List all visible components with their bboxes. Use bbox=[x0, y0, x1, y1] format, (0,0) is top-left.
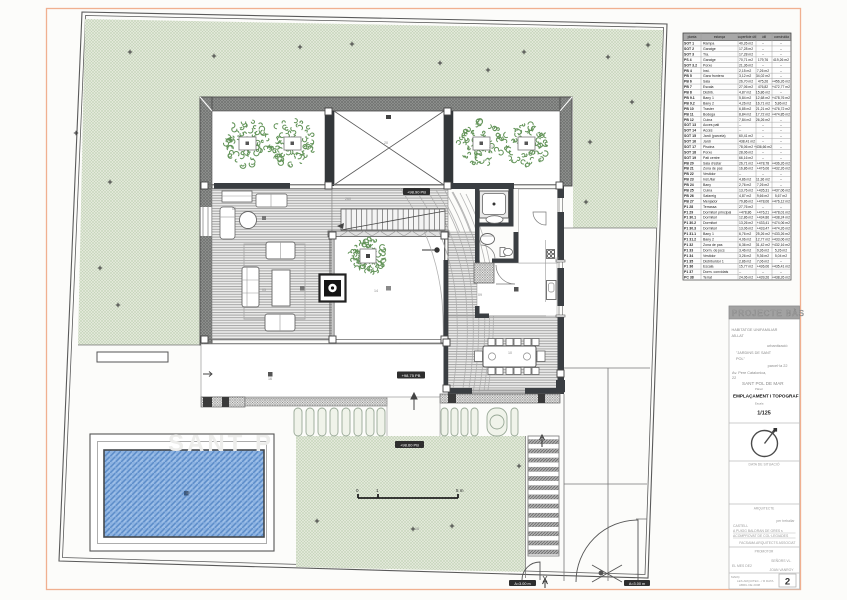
svg-text:SOT 3: SOT 3 bbox=[684, 52, 694, 56]
svg-text:Av. Pere Catalonica,: Av. Pere Catalonica, bbox=[732, 371, 766, 375]
svg-text:P1 31.2: P1 31.2 bbox=[684, 238, 696, 242]
svg-text:9,66 m2: 9,66 m2 bbox=[757, 194, 769, 198]
svg-text:6,36 m2: 6,36 m2 bbox=[739, 243, 751, 247]
svg-text:P1 34: P1 34 bbox=[684, 254, 693, 258]
svg-text:Bany 1: Bany 1 bbox=[703, 232, 714, 236]
svg-text:estança: estança bbox=[714, 35, 725, 39]
svg-text:--: -- bbox=[780, 145, 782, 149]
svg-text:+476,72 m2: +476,72 m2 bbox=[772, 107, 790, 111]
svg-text:4,26 m2: 4,26 m2 bbox=[739, 101, 751, 105]
svg-text:SOT 16: SOT 16 bbox=[684, 140, 696, 144]
svg-text:"JARDINS DE SANT: "JARDINS DE SANT bbox=[736, 351, 772, 355]
svg-text:PB 20: PB 20 bbox=[684, 161, 694, 165]
svg-text:JOAN VANROY: JOAN VANROY bbox=[769, 568, 794, 572]
svg-text:5,84 m2: 5,84 m2 bbox=[739, 96, 751, 100]
svg-text:P1 30.1: P1 30.1 bbox=[684, 216, 696, 220]
svg-text:Garatge: Garatge bbox=[703, 47, 716, 51]
svg-text:--: -- bbox=[780, 178, 782, 182]
svg-text:--: -- bbox=[739, 123, 741, 127]
svg-text:PB 27: PB 27 bbox=[684, 199, 694, 203]
svg-text:17,72 m2: 17,72 m2 bbox=[756, 112, 770, 116]
svg-text:SOT 13: SOT 13 bbox=[684, 123, 696, 127]
svg-text:SOT 3.2: SOT 3.2 bbox=[684, 63, 697, 67]
svg-text:P1 30.3: P1 30.3 bbox=[684, 227, 696, 231]
svg-text:--: -- bbox=[780, 259, 782, 263]
svg-text:Terrat: Terrat bbox=[703, 276, 712, 280]
svg-text:SANT P: SANT P bbox=[168, 430, 274, 457]
svg-text:Vestidor: Vestidor bbox=[703, 254, 716, 258]
svg-text:PB 25: PB 25 bbox=[684, 189, 694, 193]
svg-text:--: -- bbox=[780, 172, 782, 176]
svg-text:07: 07 bbox=[555, 257, 559, 261]
svg-text:Bany 2: Bany 2 bbox=[703, 101, 714, 105]
svg-text:4,06 m2: 4,06 m2 bbox=[739, 238, 751, 242]
svg-text:+436,26 m2: +436,26 m2 bbox=[772, 161, 790, 165]
svg-text:15,77 m2: 15,77 m2 bbox=[739, 265, 753, 269]
svg-text:179,76: 179,76 bbox=[758, 58, 768, 62]
svg-text:18: 18 bbox=[415, 527, 419, 531]
svg-text:Jardí (parcela): Jardí (parcela) bbox=[703, 134, 726, 138]
svg-text:5,67 m2: 5,67 m2 bbox=[775, 194, 787, 198]
svg-text:parcel·la 22: parcel·la 22 bbox=[768, 364, 788, 368]
svg-text:--: -- bbox=[762, 63, 764, 67]
svg-text:--: -- bbox=[762, 270, 764, 274]
svg-text:26,70 m2: 26,70 m2 bbox=[739, 80, 753, 84]
svg-text:+439,26: +439,26 bbox=[757, 276, 769, 280]
svg-text:PB 26: PB 26 bbox=[684, 194, 694, 198]
svg-text:HABITATGE UNIFAMILIAR: HABITATGE UNIFAMILIAR bbox=[732, 328, 778, 332]
svg-text:Piscina: Piscina bbox=[703, 145, 714, 149]
svg-text:--: -- bbox=[762, 52, 764, 56]
svg-text:2,86 m2: 2,86 m2 bbox=[739, 259, 751, 263]
svg-text:--: -- bbox=[780, 69, 782, 73]
svg-text:PS 4: PS 4 bbox=[684, 58, 692, 62]
svg-text:12,77 m2: 12,77 m2 bbox=[756, 238, 770, 242]
svg-text:--: -- bbox=[780, 150, 782, 154]
svg-text:--: -- bbox=[780, 270, 782, 274]
svg-text:P1 31.1: P1 31.1 bbox=[684, 232, 696, 236]
svg-text:Dormitori: Dormitori bbox=[703, 227, 717, 231]
svg-text:4,86 m2: 4,86 m2 bbox=[739, 178, 751, 182]
svg-text:POL": POL" bbox=[736, 357, 746, 361]
svg-text:21,21 m2: 21,21 m2 bbox=[756, 107, 770, 111]
svg-text:13: 13 bbox=[186, 491, 190, 495]
svg-text:476,82: 476,82 bbox=[758, 85, 768, 89]
svg-text:7,06 m2: 7,06 m2 bbox=[757, 259, 769, 263]
svg-text:+436,66 m2: +436,66 m2 bbox=[754, 145, 772, 149]
svg-text:Jardí: Jardí bbox=[703, 140, 711, 144]
svg-text:--: -- bbox=[762, 172, 764, 176]
svg-text:+437,06 m2: +437,06 m2 bbox=[772, 189, 790, 193]
svg-text:--: -- bbox=[780, 123, 782, 127]
svg-text:PB 12: PB 12 bbox=[684, 118, 694, 122]
svg-text:--: -- bbox=[780, 183, 782, 187]
svg-text:FACSAMA ARQUITECTS ASSOCIAT: FACSAMA ARQUITECTS ASSOCIAT bbox=[739, 541, 795, 545]
svg-text:Vestidor: Vestidor bbox=[703, 172, 716, 176]
svg-text:ABRIL DE 2008: ABRIL DE 2008 bbox=[739, 583, 760, 587]
svg-text:+476,21: +476,21 bbox=[757, 210, 769, 214]
svg-text:+478,06: +478,06 bbox=[757, 199, 769, 203]
svg-text:+433,41: +433,41 bbox=[757, 221, 769, 225]
svg-text:66,16 m2: 66,16 m2 bbox=[739, 156, 753, 160]
svg-text:Safareig: Safareig bbox=[703, 194, 716, 198]
svg-text:PC 38: PC 38 bbox=[684, 276, 694, 280]
svg-text:15,86 m2: 15,86 m2 bbox=[756, 91, 770, 95]
svg-text:--: -- bbox=[780, 74, 782, 78]
svg-text:A=3.00 m: A=3.00 m bbox=[629, 582, 645, 586]
svg-text:22: 22 bbox=[732, 376, 736, 380]
svg-text:2: 2 bbox=[785, 577, 790, 588]
svg-text:PB 6: PB 6 bbox=[684, 80, 692, 84]
svg-text:PB 5: PB 5 bbox=[684, 74, 692, 78]
svg-text:10: 10 bbox=[508, 351, 512, 355]
svg-text:7,26 m2: 7,26 m2 bbox=[757, 69, 769, 73]
svg-text:PB 4: PB 4 bbox=[684, 69, 692, 73]
svg-text:--: -- bbox=[762, 129, 764, 133]
svg-text:+474,26 m2: +474,26 m2 bbox=[772, 227, 790, 231]
svg-text:+98.60 PB: +98.60 PB bbox=[400, 442, 419, 447]
svg-text:Cuina: Cuina bbox=[703, 118, 712, 122]
svg-text:+476,12 m2: +476,12 m2 bbox=[772, 199, 790, 203]
svg-text:SANT POL DE MAR: SANT POL DE MAR bbox=[742, 381, 784, 386]
svg-text:Pati centre: Pati centre bbox=[703, 156, 720, 160]
svg-text:--: -- bbox=[762, 123, 764, 127]
svg-text:SOT 1: SOT 1 bbox=[684, 42, 694, 46]
svg-text:Bany 1: Bany 1 bbox=[703, 96, 714, 100]
svg-text:Rampa: Rampa bbox=[703, 42, 714, 46]
svg-text:Traster: Traster bbox=[703, 107, 715, 111]
svg-text:7,84 m2: 7,84 m2 bbox=[739, 118, 751, 122]
svg-text:SOT 2: SOT 2 bbox=[684, 47, 694, 51]
svg-text:2,76 m2: 2,76 m2 bbox=[739, 183, 751, 187]
svg-text:Sala d'estar: Sala d'estar bbox=[703, 161, 722, 165]
svg-text:27,06 m2: 27,06 m2 bbox=[739, 85, 753, 89]
svg-text:+436,06: +436,06 bbox=[757, 265, 769, 269]
svg-text:PROMOTOR: PROMOTOR bbox=[755, 550, 774, 554]
svg-text:Escala: Escala bbox=[703, 85, 714, 89]
svg-text:DATA DE SITUACIÓ: DATA DE SITUACIÓ bbox=[749, 462, 780, 467]
svg-text:Acces pati: Acces pati bbox=[703, 123, 719, 127]
svg-text:P1 33: P1 33 bbox=[684, 248, 693, 252]
svg-text:34,02 m2: 34,02 m2 bbox=[756, 74, 770, 78]
svg-text:Accés: Accés bbox=[703, 129, 713, 133]
svg-text:6,76 m2: 6,76 m2 bbox=[739, 232, 751, 236]
svg-text:superfície útil: superfície útil bbox=[738, 35, 757, 39]
svg-text:+432,16 m2: +432,16 m2 bbox=[772, 243, 790, 247]
svg-text:+433,06 m2: +433,06 m2 bbox=[772, 238, 790, 242]
svg-text:3,26 m2: 3,26 m2 bbox=[739, 254, 751, 258]
svg-text:EL MES DE2: EL MES DE2 bbox=[732, 564, 752, 568]
svg-text:2,15 m2: 2,15 m2 bbox=[739, 69, 751, 73]
svg-text:40,26 m2: 40,26 m2 bbox=[739, 42, 753, 46]
svg-text:3,12 m2: 3,12 m2 bbox=[739, 74, 751, 78]
svg-text:ACOMPROVAT DE COL·LEGIADES: ACOMPROVAT DE COL·LEGIADES bbox=[733, 534, 789, 538]
svg-text:EMPLAÇAMENT I TOPOGRAF: EMPLAÇAMENT I TOPOGRAF bbox=[733, 394, 799, 399]
svg-text:ARQUITECTE: ARQUITECTE bbox=[754, 507, 775, 511]
svg-text:26,71 m2: 26,71 m2 bbox=[739, 161, 753, 165]
svg-text:260: 260 bbox=[345, 197, 351, 201]
svg-text:PB 21: PB 21 bbox=[684, 167, 694, 171]
svg-text:Inst./llar: Inst./llar bbox=[703, 178, 716, 182]
svg-text:--: -- bbox=[762, 140, 764, 144]
svg-text:3,46 m2: 3,46 m2 bbox=[739, 248, 751, 252]
svg-text:PB 24: PB 24 bbox=[684, 183, 694, 187]
svg-text:17,28 m2: 17,28 m2 bbox=[739, 52, 753, 56]
svg-text:03: 03 bbox=[232, 207, 236, 211]
svg-text:+98.75 PB: +98.75 PB bbox=[402, 373, 421, 378]
svg-text:+472,77 m2: +472,77 m2 bbox=[772, 85, 790, 89]
svg-text:--: -- bbox=[780, 47, 782, 51]
svg-text:+438,24 m2: +438,24 m2 bbox=[772, 216, 790, 220]
svg-text:PB 11: PB 11 bbox=[684, 112, 694, 116]
svg-text:+456,26 m2: +456,26 m2 bbox=[772, 80, 790, 84]
svg-text:--: -- bbox=[780, 91, 782, 95]
svg-text:09: 09 bbox=[478, 293, 482, 297]
svg-text:P1 37: P1 37 bbox=[684, 270, 693, 274]
svg-text:P1 35: P1 35 bbox=[684, 259, 693, 263]
svg-text:--: -- bbox=[780, 134, 782, 138]
svg-text:Dorm. convidats: Dorm. convidats bbox=[703, 270, 729, 274]
svg-text:4,87 m2: 4,87 m2 bbox=[739, 91, 751, 95]
svg-text:+432,26 m2: +432,26 m2 bbox=[772, 167, 790, 171]
svg-text:Bany: Bany bbox=[703, 183, 711, 187]
svg-text:5,04 m2: 5,04 m2 bbox=[775, 254, 787, 258]
svg-text:25,26 m2: 25,26 m2 bbox=[756, 232, 770, 236]
svg-text:+434,86: +434,86 bbox=[757, 216, 769, 220]
svg-text:--: -- bbox=[780, 52, 782, 56]
svg-text:78,06 m2: 78,06 m2 bbox=[739, 145, 753, 149]
svg-text:8,84 m2: 8,84 m2 bbox=[739, 112, 751, 116]
svg-text:urbanització: urbanització bbox=[767, 344, 787, 348]
svg-text:16: 16 bbox=[268, 377, 272, 381]
svg-text:SOT 17: SOT 17 bbox=[684, 145, 696, 149]
svg-text:Zona de pas: Zona de pas bbox=[703, 167, 723, 171]
svg-text:--: -- bbox=[780, 140, 782, 144]
svg-text:5,86 m2: 5,86 m2 bbox=[775, 101, 787, 105]
svg-text:Dormitori: Dormitori bbox=[703, 216, 717, 220]
svg-text:Escala: Escala bbox=[703, 265, 714, 269]
svg-text:17,28 m2: 17,28 m2 bbox=[739, 47, 753, 51]
svg-text:Porxo: Porxo bbox=[703, 63, 712, 67]
svg-text:A PUIGG BALDRAN DE GRES s: A PUIGG BALDRAN DE GRES s bbox=[733, 529, 783, 533]
svg-text:Tra.: Tra. bbox=[703, 52, 709, 56]
svg-text:SOT 14: SOT 14 bbox=[684, 129, 696, 133]
svg-text:Sala: Sala bbox=[703, 80, 710, 84]
svg-text:4,87 m2: 4,87 m2 bbox=[739, 194, 751, 198]
svg-text:Plànol: Plànol bbox=[755, 387, 763, 391]
svg-text:24,06 m2: 24,06 m2 bbox=[739, 276, 753, 280]
svg-text:13,06 m2: 13,06 m2 bbox=[739, 227, 753, 231]
svg-text:Cuina: Cuina bbox=[703, 189, 712, 193]
svg-text:PB 10: PB 10 bbox=[684, 107, 694, 111]
svg-text:--: -- bbox=[762, 205, 764, 209]
svg-text:--: -- bbox=[762, 134, 764, 138]
svg-text:CASTELL: CASTELL bbox=[733, 524, 748, 528]
svg-text:+478,76 m2: +478,76 m2 bbox=[772, 96, 790, 100]
svg-text:Terrassa: Terrassa bbox=[703, 205, 716, 209]
svg-text:+438,26 m2: +438,26 m2 bbox=[772, 276, 790, 280]
svg-text:PROJECTE BÀS: PROJECTE BÀS bbox=[732, 309, 805, 318]
svg-text:13,76 m2: 13,76 m2 bbox=[739, 189, 753, 193]
svg-text:438,41 m2: 438,41 m2 bbox=[739, 140, 755, 144]
svg-text:P1 32: P1 32 bbox=[684, 243, 693, 247]
svg-text:--: -- bbox=[762, 47, 764, 51]
svg-text:P1 36: P1 36 bbox=[684, 265, 693, 269]
svg-text:7,26 m2: 7,26 m2 bbox=[757, 183, 769, 187]
svg-text:Bodega: Bodega bbox=[703, 112, 715, 116]
svg-text:475,26: 475,26 bbox=[758, 80, 768, 84]
svg-text:+478,86: +478,86 bbox=[739, 210, 751, 214]
svg-text:Zona de pas: Zona de pas bbox=[703, 243, 723, 247]
svg-text:Menjador: Menjador bbox=[703, 199, 718, 203]
svg-text:+476,06: +476,06 bbox=[757, 167, 769, 171]
svg-text:--: -- bbox=[762, 150, 764, 154]
svg-text:--: -- bbox=[739, 129, 741, 133]
svg-text:+474,06 m2: +474,06 m2 bbox=[772, 221, 790, 225]
svg-text:79,86 m2: 79,86 m2 bbox=[739, 199, 753, 203]
svg-text:5 m: 5 m bbox=[456, 488, 464, 493]
svg-text:13,26 m2: 13,26 m2 bbox=[739, 221, 753, 225]
svg-text:27,76 m2: 27,76 m2 bbox=[739, 205, 753, 209]
svg-text:Bany 2: Bany 2 bbox=[703, 238, 714, 242]
svg-text:PB 23: PB 23 bbox=[684, 178, 694, 182]
svg-text:SOT 15: SOT 15 bbox=[684, 134, 696, 138]
svg-text:+435,31: +435,31 bbox=[757, 189, 769, 193]
svg-text:per treballar: per treballar bbox=[776, 519, 795, 523]
svg-text:12,86 m2: 12,86 m2 bbox=[739, 216, 753, 220]
svg-text:Porxo: Porxo bbox=[703, 150, 712, 154]
svg-text:A=3.00 m: A=3.00 m bbox=[514, 582, 530, 586]
svg-text:PB 7: PB 7 bbox=[684, 85, 692, 89]
svg-text:26,26 m2: 26,26 m2 bbox=[756, 118, 770, 122]
svg-text:P1 29: P1 29 bbox=[684, 210, 693, 214]
svg-text:21: 21 bbox=[489, 145, 493, 149]
svg-text:Distribuïdor 1: Distribuïdor 1 bbox=[703, 259, 724, 263]
svg-text:+435,41 m2: +435,41 m2 bbox=[772, 265, 790, 269]
svg-text:Gara frontera: Gara frontera bbox=[703, 74, 724, 78]
svg-text:--: -- bbox=[780, 156, 782, 160]
svg-text:+478,01 m2: +478,01 m2 bbox=[772, 210, 790, 214]
svg-text:construïda: construïda bbox=[774, 35, 789, 39]
svg-text:5,26 m2: 5,26 m2 bbox=[775, 248, 787, 252]
svg-text:14: 14 bbox=[374, 289, 378, 293]
svg-text:--: -- bbox=[739, 172, 741, 176]
svg-text:Distrib.: Distrib. bbox=[703, 91, 714, 95]
svg-text:+433,47: +433,47 bbox=[757, 227, 769, 231]
svg-text:SOT 18: SOT 18 bbox=[684, 150, 696, 154]
svg-text:419,26 m2: 419,26 m2 bbox=[773, 58, 789, 62]
svg-text:11,36 m2: 11,36 m2 bbox=[756, 178, 770, 182]
svg-text:--: -- bbox=[739, 270, 741, 274]
svg-text:--: -- bbox=[780, 118, 782, 122]
svg-text:16,86 m2: 16,86 m2 bbox=[739, 167, 753, 171]
svg-text:28,06 m2: 28,06 m2 bbox=[739, 150, 753, 154]
svg-text:PB 9.2: PB 9.2 bbox=[684, 101, 695, 105]
svg-text:P1 30.2: P1 30.2 bbox=[684, 221, 696, 225]
svg-text:60,41 m2: 60,41 m2 bbox=[739, 134, 753, 138]
svg-text:+474,85 m2: +474,85 m2 bbox=[772, 112, 790, 116]
svg-text:12,68 m2: 12,68 m2 bbox=[756, 96, 770, 100]
svg-text:1/125: 1/125 bbox=[757, 411, 771, 417]
svg-text:--: -- bbox=[780, 129, 782, 133]
svg-text:Dormitori principal: Dormitori principal bbox=[703, 210, 731, 214]
svg-text:Escala: Escala bbox=[755, 402, 764, 406]
svg-text:+98.90 PB: +98.90 PB bbox=[407, 189, 426, 194]
svg-text:Dormitori: Dormitori bbox=[703, 221, 717, 225]
svg-text:21,36 m2: 21,36 m2 bbox=[739, 63, 753, 67]
svg-text:--: -- bbox=[780, 205, 782, 209]
svg-text:P1 28: P1 28 bbox=[684, 205, 693, 209]
svg-text:--: -- bbox=[780, 63, 782, 67]
svg-text:20: 20 bbox=[384, 141, 388, 145]
svg-text:+478,78: +478,78 bbox=[757, 161, 769, 165]
svg-text:--: -- bbox=[780, 42, 782, 46]
svg-text:16,71 m2: 16,71 m2 bbox=[756, 101, 770, 105]
svg-text:9,36 m2: 9,36 m2 bbox=[757, 254, 769, 258]
svg-text:6,85 m2: 6,85 m2 bbox=[739, 107, 751, 111]
svg-text:útil: útil bbox=[762, 35, 766, 39]
svg-text:Inst.: Inst. bbox=[703, 69, 710, 73]
svg-text:Garatge: Garatge bbox=[703, 58, 716, 62]
svg-text:SEÑORS VL.: SEÑORS VL. bbox=[771, 558, 791, 563]
svg-text:PB 9.1: PB 9.1 bbox=[684, 96, 695, 100]
svg-text:PB 22: PB 22 bbox=[684, 172, 694, 176]
svg-text:05: 05 bbox=[262, 288, 266, 292]
svg-text:SOT 19: SOT 19 bbox=[684, 156, 696, 160]
svg-text:70,71 m2: 70,71 m2 bbox=[739, 58, 753, 62]
svg-text:AÏLLAT: AÏLLAT bbox=[732, 334, 745, 338]
svg-text:Dorm. de jocs: Dorm. de jocs bbox=[703, 248, 725, 252]
svg-text:--: -- bbox=[762, 156, 764, 160]
svg-text:9,36 m2: 9,36 m2 bbox=[757, 248, 769, 252]
svg-text:planta: planta bbox=[688, 35, 697, 39]
svg-text:--: -- bbox=[762, 42, 764, 46]
svg-text:+433,26 m2: +433,26 m2 bbox=[772, 232, 790, 236]
svg-text:31,42 m2: 31,42 m2 bbox=[756, 243, 770, 247]
svg-text:PB 8: PB 8 bbox=[684, 91, 692, 95]
